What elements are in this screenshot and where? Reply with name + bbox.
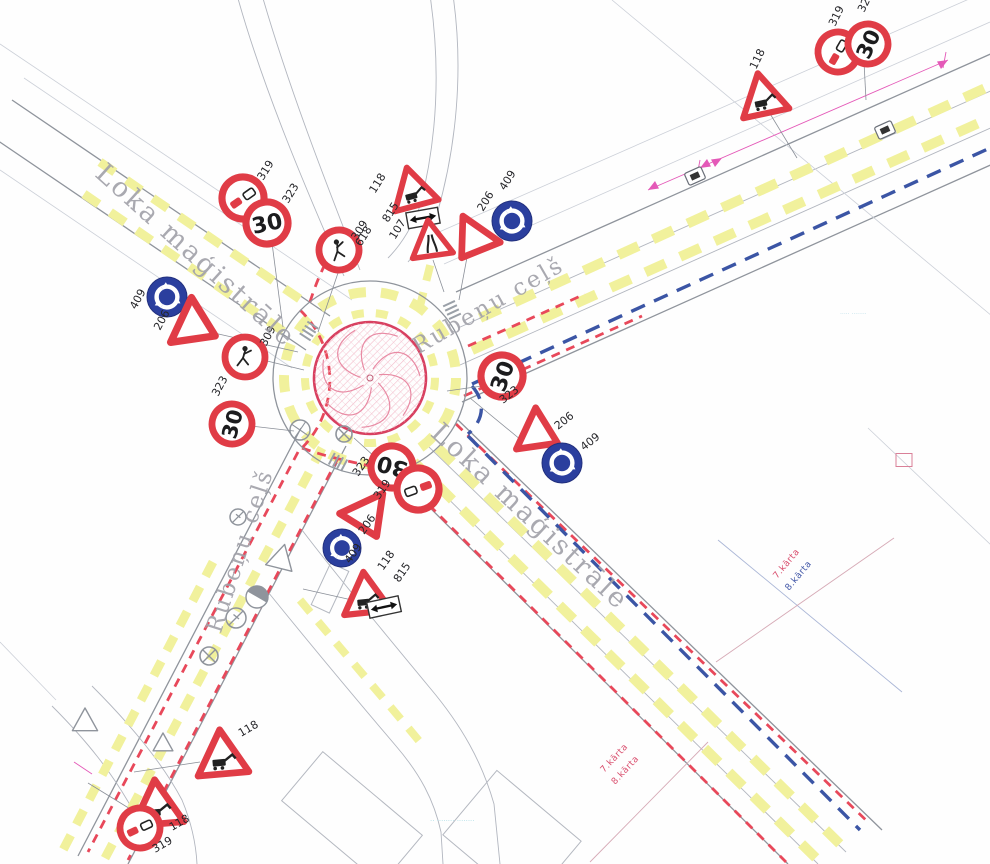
sign-number-label: 319 bbox=[255, 158, 277, 183]
sign-number-label: 118 bbox=[236, 718, 261, 740]
traffic-plan-page: 3030303030 31932330911881510720640940920… bbox=[0, 0, 990, 864]
existing-gray-triangle-symbol bbox=[153, 733, 173, 751]
existing-signs-layer bbox=[72, 120, 895, 750]
sign-number-label: 323 bbox=[209, 374, 230, 399]
sign-number-label: 409 bbox=[497, 168, 519, 193]
existing-gray-triangle-symbol bbox=[72, 708, 97, 731]
sign-roundabout bbox=[492, 201, 532, 241]
existing-wheel-symbol bbox=[290, 420, 310, 440]
sign-number-label: 815 bbox=[391, 560, 414, 585]
sign-number-label: 118 bbox=[747, 47, 768, 72]
sign-number-label: 319 bbox=[826, 4, 847, 29]
sign-number-label: 323 bbox=[280, 181, 302, 206]
sign-speed30: 30 bbox=[208, 400, 257, 449]
sign-leader-line bbox=[134, 762, 200, 772]
sign-number-label: 409 bbox=[127, 287, 148, 312]
sign-number-label: 323 bbox=[855, 0, 876, 14]
sign-leader-line bbox=[433, 260, 444, 292]
sign-number-label: 206 bbox=[552, 409, 577, 432]
sign-leader-line bbox=[303, 589, 352, 600]
roads-layer bbox=[0, 0, 990, 864]
traffic-plan-canvas: 3030303030 31932330911881510720640940920… bbox=[0, 0, 990, 864]
sign-number-label: 206 bbox=[475, 189, 497, 214]
sign-roadworks bbox=[735, 68, 789, 118]
markings-layer bbox=[62, 52, 990, 862]
sign-number-label: 409 bbox=[578, 430, 603, 453]
sign-give-way bbox=[443, 216, 500, 271]
sign-leader-line bbox=[864, 62, 866, 100]
sign-roundabout bbox=[542, 443, 582, 483]
sign-number-label: 118 bbox=[367, 171, 389, 196]
sign-number-label: 118 bbox=[375, 548, 398, 573]
faint-watermark-text: ····· ········ bbox=[840, 311, 867, 318]
faint-watermark-text: ·· ········ ········ bbox=[430, 817, 475, 825]
sign-leader-line bbox=[263, 360, 304, 370]
